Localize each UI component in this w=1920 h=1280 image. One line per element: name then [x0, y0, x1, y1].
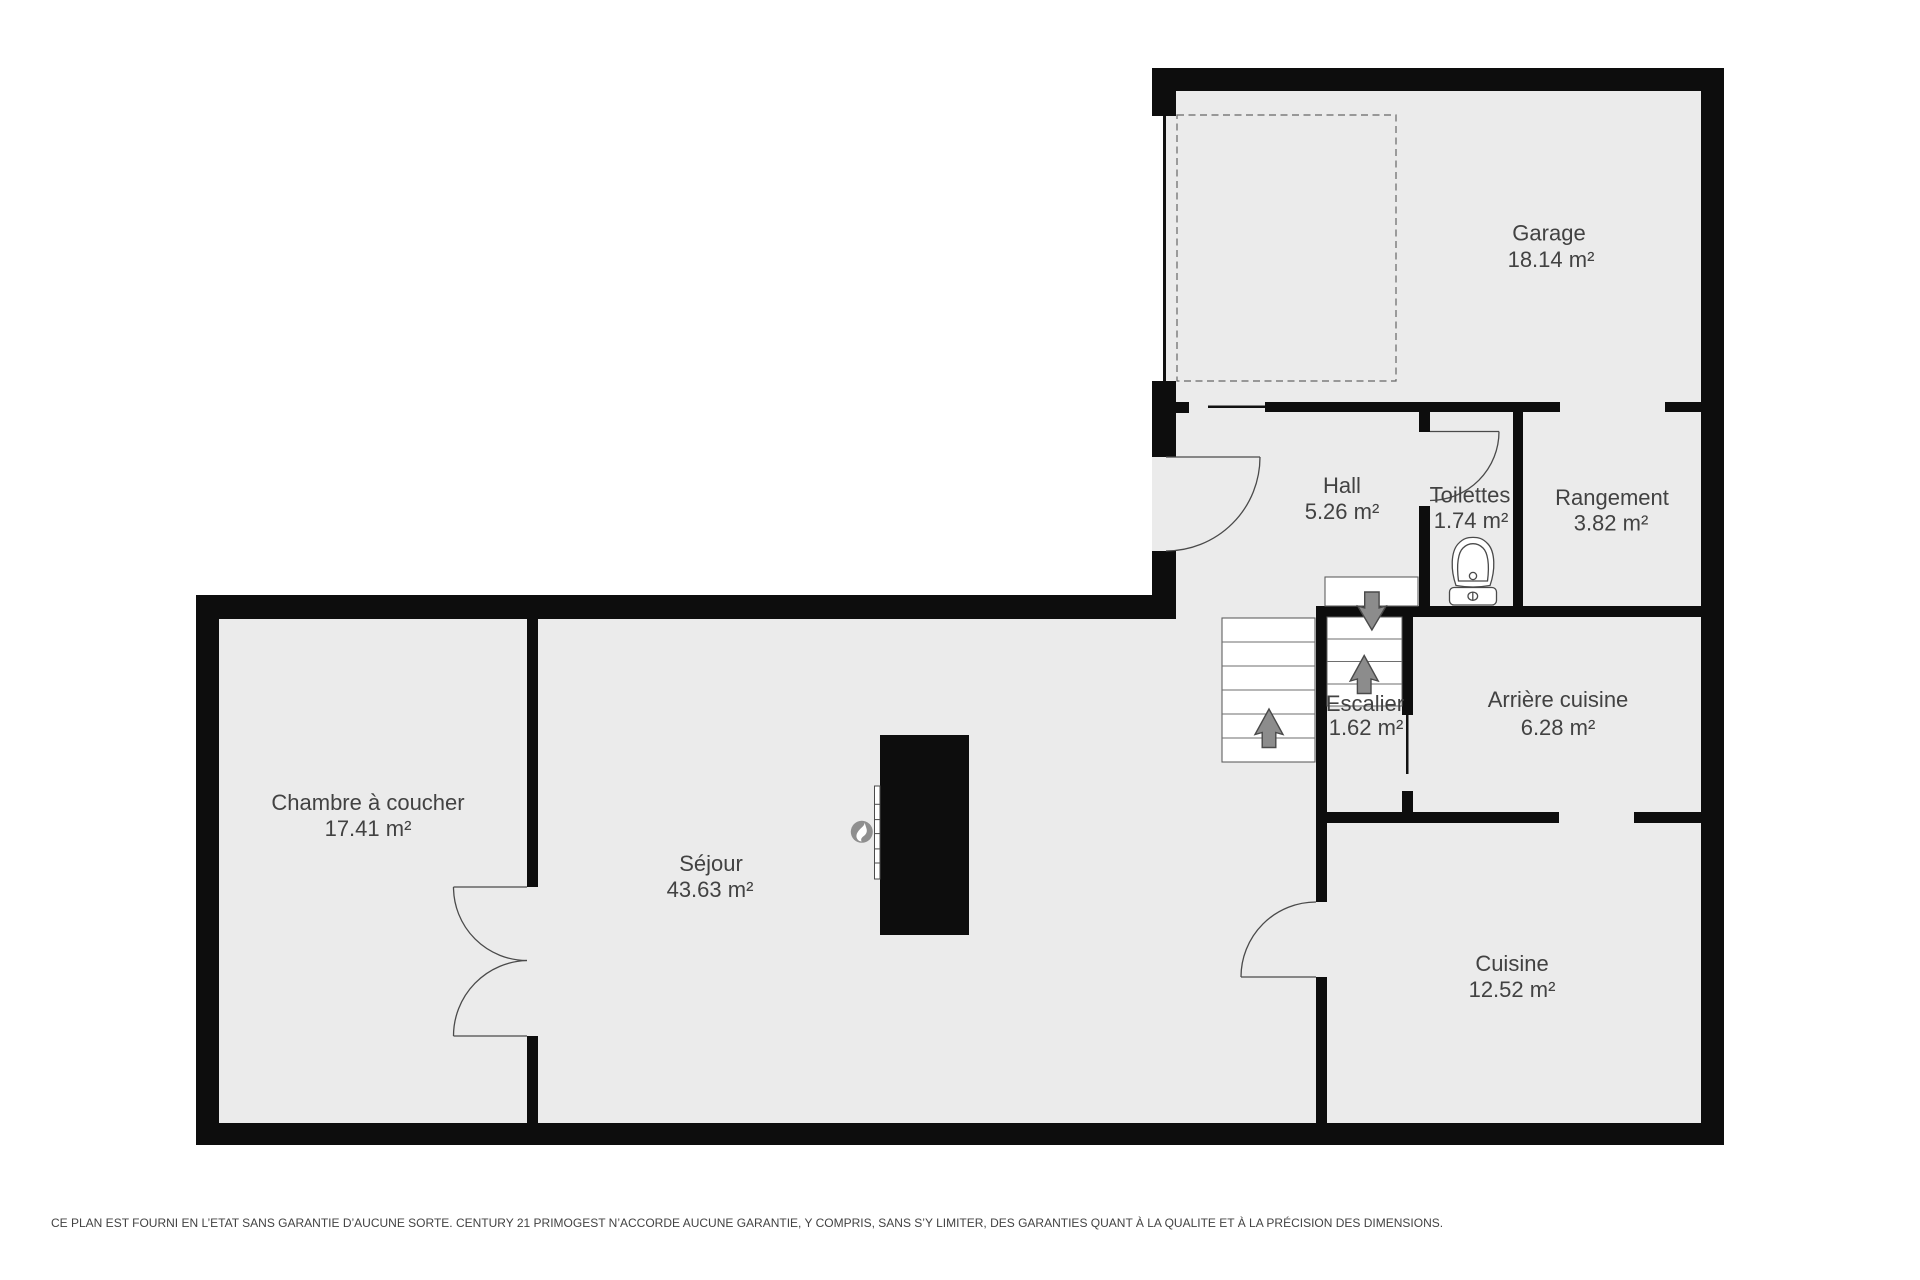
- svg-text:43.63 m²: 43.63 m²: [667, 877, 754, 902]
- svg-text:Garage: Garage: [1512, 221, 1585, 246]
- svg-text:Cuisine: Cuisine: [1475, 951, 1548, 976]
- svg-text:Rangement: Rangement: [1555, 485, 1669, 510]
- svg-text:Escalier: Escalier: [1326, 691, 1404, 716]
- svg-text:17.41 m²: 17.41 m²: [325, 816, 412, 841]
- svg-text:1.74 m²: 1.74 m²: [1434, 508, 1509, 533]
- svg-text:Arrière cuisine: Arrière cuisine: [1488, 687, 1629, 712]
- svg-text:Chambre à coucher: Chambre à coucher: [271, 790, 464, 815]
- svg-text:3.82 m²: 3.82 m²: [1574, 511, 1649, 536]
- svg-text:1.62 m²: 1.62 m²: [1329, 715, 1404, 740]
- svg-text:6.28 m²: 6.28 m²: [1521, 715, 1596, 740]
- svg-text:5.26 m²: 5.26 m²: [1305, 499, 1380, 524]
- svg-text:Toilettes: Toilettes: [1430, 483, 1511, 508]
- svg-text:CE PLAN EST FOURNI EN L’ETAT S: CE PLAN EST FOURNI EN L’ETAT SANS GARANT…: [51, 1215, 1443, 1230]
- svg-text:Séjour: Séjour: [679, 851, 743, 876]
- svg-text:Hall: Hall: [1323, 473, 1361, 498]
- svg-text:18.14 m²: 18.14 m²: [1508, 247, 1595, 272]
- svg-text:12.52 m²: 12.52 m²: [1469, 977, 1556, 1002]
